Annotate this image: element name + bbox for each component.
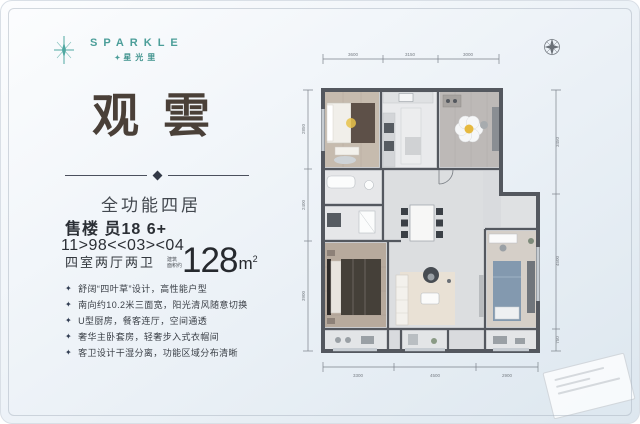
svg-text:2400: 2400 <box>301 199 306 210</box>
bullet-diamond-icon: ✦ <box>65 300 72 311</box>
area-value: 128 <box>182 245 237 276</box>
dimension-right: 3450 4500 750 <box>551 90 561 351</box>
svg-text:2850: 2850 <box>301 123 306 134</box>
bullet-diamond-icon: ✦ <box>65 284 72 295</box>
bullet-diamond-icon: ✦ <box>65 348 72 359</box>
svg-text:2900: 2900 <box>502 373 513 378</box>
dimension-top: 3600 3150 3000 <box>323 52 499 64</box>
svg-text:750: 750 <box>555 336 560 344</box>
diamond-ornament-icon <box>152 171 162 181</box>
svg-text:4500: 4500 <box>555 255 560 266</box>
list-item: ✦ 客卫设计干湿分离，功能区域分布清晰 <box>65 348 290 359</box>
layout-type: 全功能四居 <box>29 191 273 216</box>
area-prefix: 建筑 面积约 <box>167 257 182 276</box>
svg-text:3000: 3000 <box>463 52 474 57</box>
entry-bay-floor <box>501 196 536 227</box>
highlight-text: U型厨房，餐客连厅，空间通透 <box>78 316 207 327</box>
list-item: ✦ 奢华主卧套房，轻奢步入式衣帽间 <box>65 332 290 343</box>
page-title: 观雲 <box>29 87 273 147</box>
compass-icon <box>545 39 560 56</box>
highlight-text: 南向约10.2米三面宽，阳光清风随意切换 <box>78 300 248 311</box>
poster: SPARKLE ✦ 星光里 观雲 全功能四居 售楼 员18 6+ 11>98<<… <box>0 0 640 424</box>
brand-subname: ✦ 星光里 <box>114 52 159 63</box>
list-item: ✦ 舒阔“四叶草”设计，高性能户型 <box>65 284 290 295</box>
highlight-text: 奢华主卧套房，轻奢步入式衣帽间 <box>78 332 219 343</box>
bedroom-bottomleft-furniture <box>327 250 381 324</box>
highlight-text: 客卫设计干湿分离，功能区域分布清晰 <box>78 348 238 359</box>
svg-text:3150: 3150 <box>405 52 416 57</box>
highlight-text: 舒阔“四叶草”设计，高性能户型 <box>78 284 207 295</box>
floor-plan-graphic: 3600 3150 3000 2850 2400 3900 3450 4500 … <box>293 29 573 389</box>
svg-text:4500: 4500 <box>430 373 441 378</box>
rooms-label: 四室两厅两卫 <box>65 252 155 276</box>
brand-logo: SPARKLE ✦ 星光里 <box>51 35 184 65</box>
list-item: ✦ U型厨房，餐客连厅，空间通透 <box>65 316 290 327</box>
svg-text:3450: 3450 <box>555 136 560 147</box>
highlight-list: ✦ 舒阔“四叶草”设计，高性能户型 ✦ 南向约10.2米三面宽，阳光清风随意切换… <box>65 284 290 364</box>
unit-spec-row: 四室两厅两卫 建筑 面积约 128 m 2 <box>65 245 290 276</box>
sparkle-star-icon <box>51 35 77 65</box>
bullet-diamond-icon: ✦ <box>65 316 72 327</box>
dining-set <box>401 205 443 241</box>
title-divider <box>65 172 249 179</box>
svg-text:3300: 3300 <box>353 373 364 378</box>
area-prefix-line2: 面积约 <box>167 263 182 269</box>
svg-text:3600: 3600 <box>348 52 359 57</box>
area-exponent: 2 <box>253 254 258 276</box>
sales-line-1: 售楼 员18 6+ <box>65 215 167 239</box>
list-item: ✦ 南向约10.2米三面宽，阳光清风随意切换 <box>65 300 290 311</box>
balcony-left-floor <box>325 331 386 349</box>
dimension-bottom: 3300 4500 2900 <box>323 362 538 378</box>
brand-name: SPARKLE <box>90 37 184 49</box>
watermark-line <box>558 377 621 394</box>
dimension-left: 2850 2400 3900 <box>301 90 313 351</box>
brand-subname-text: 星光里 <box>123 52 159 63</box>
brand-text: SPARKLE ✦ 星光里 <box>90 37 184 63</box>
divider-line <box>168 175 250 176</box>
area-unit: m <box>238 254 252 276</box>
divider-line <box>65 175 147 176</box>
flower-rug <box>455 116 483 142</box>
bullet-diamond-icon: ✦ <box>65 332 72 343</box>
area-group: 建筑 面积约 128 m 2 <box>167 245 258 276</box>
svg-text:3900: 3900 <box>301 290 306 301</box>
sparkle-mark-icon: ✦ <box>114 54 120 62</box>
